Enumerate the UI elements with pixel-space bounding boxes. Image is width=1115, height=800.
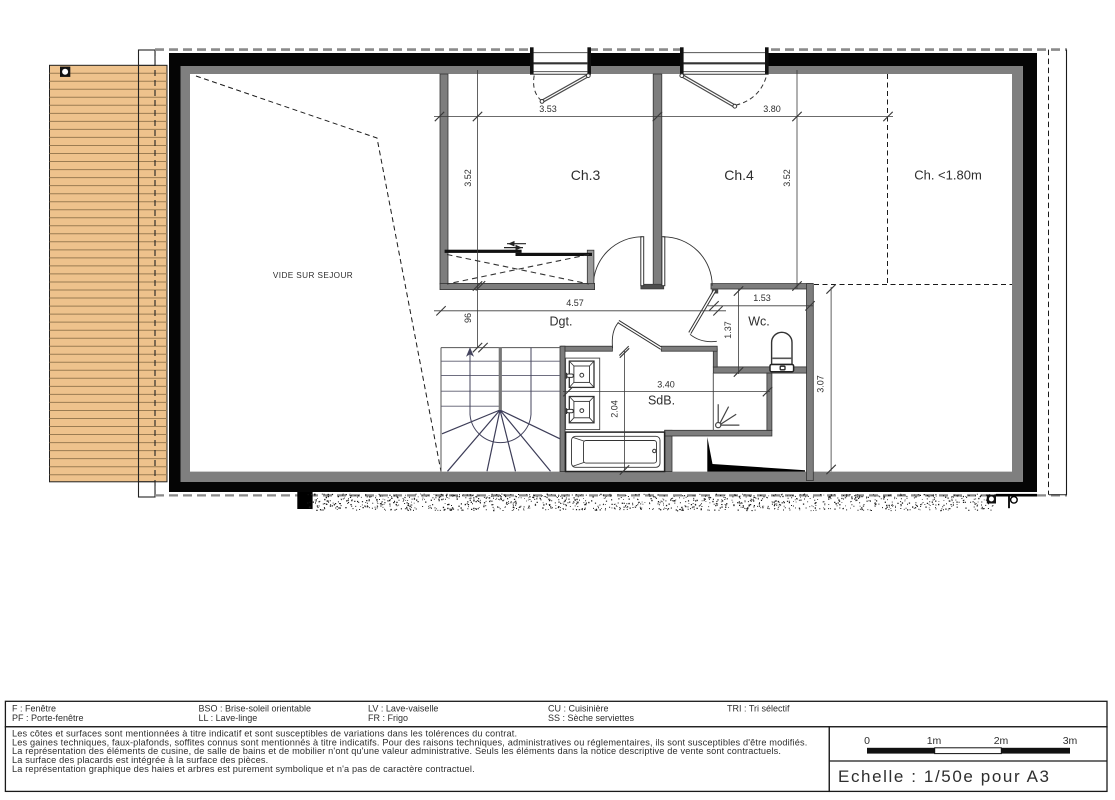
svg-text:2.04: 2.04: [610, 400, 620, 418]
svg-text:2m: 2m: [994, 735, 1009, 747]
svg-text:FR : Frigo: FR : Frigo: [368, 713, 408, 723]
svg-text:TRI : Tri sélectif: TRI : Tri sélectif: [727, 704, 790, 714]
svg-text:Dgt.: Dgt.: [550, 315, 573, 329]
svg-text:3.52: 3.52: [782, 169, 792, 187]
svg-text:1.53: 1.53: [753, 293, 771, 303]
svg-text:LL : Lave-linge: LL : Lave-linge: [199, 713, 258, 723]
svg-text:0: 0: [864, 735, 870, 747]
svg-text:Ch.4: Ch.4: [724, 167, 754, 183]
svg-text:3.53: 3.53: [539, 104, 557, 114]
svg-text:SS : Sèche serviettes: SS : Sèche serviettes: [548, 713, 635, 723]
svg-text:4.57: 4.57: [566, 298, 584, 308]
svg-text:SdB.: SdB.: [648, 394, 675, 408]
svg-text:Ch.3: Ch.3: [571, 167, 601, 183]
svg-text:VIDE SUR SEJOUR: VIDE SUR SEJOUR: [273, 271, 353, 280]
svg-text:1.37: 1.37: [723, 321, 733, 339]
svg-text:Ch. <1.80m: Ch. <1.80m: [914, 168, 982, 183]
svg-text:96: 96: [463, 313, 473, 323]
svg-text:3.52: 3.52: [463, 169, 473, 187]
svg-text:Echelle : 1/50e pour A3: Echelle : 1/50e pour A3: [838, 767, 1051, 786]
svg-text:Wc.: Wc.: [748, 315, 770, 329]
svg-text:La représentation graphique de: La représentation graphique des haies et…: [12, 764, 475, 774]
svg-text:1m: 1m: [927, 735, 942, 747]
svg-text:PF : Porte-fenêtre: PF : Porte-fenêtre: [12, 713, 84, 723]
svg-text:3m: 3m: [1063, 735, 1078, 747]
svg-text:3.80: 3.80: [763, 104, 781, 114]
svg-text:3.07: 3.07: [816, 375, 826, 393]
svg-text:3.40: 3.40: [657, 379, 675, 389]
